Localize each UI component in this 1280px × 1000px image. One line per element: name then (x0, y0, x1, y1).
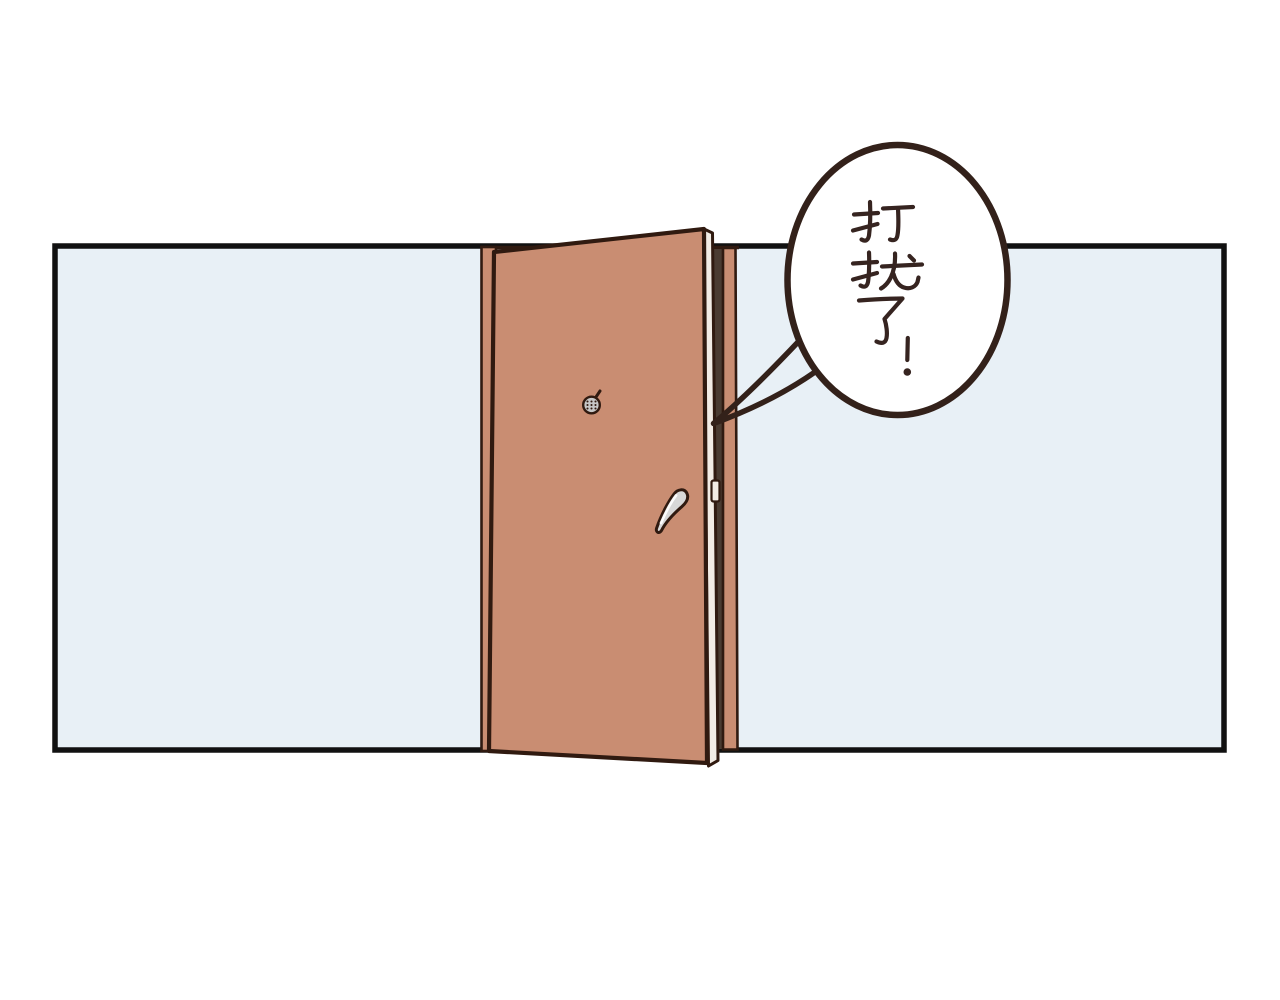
comic-panel: 打扰了! (0, 0, 1280, 1000)
peephole-dots (586, 400, 596, 409)
comic-panel-drawing (0, 0, 1280, 1000)
door-latch-plate (712, 481, 720, 502)
door-frame-right-jamb (723, 248, 738, 750)
